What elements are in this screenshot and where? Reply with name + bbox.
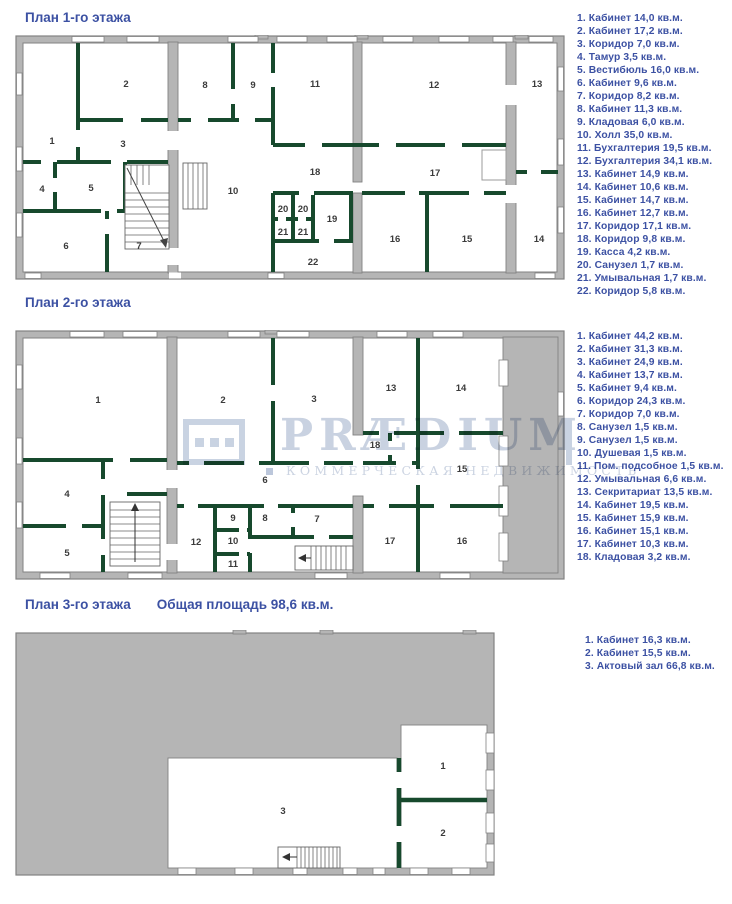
floor2-legend: 1. Кабинет 44,2 кв.м.2. Кабинет 31,3 кв.… [577, 330, 724, 564]
legend-item: 15. Кабинет 14,7 кв.м. [577, 194, 712, 207]
legend-item: 5. Кабинет 9,4 кв.м. [577, 382, 724, 395]
watermark-right-bar [566, 419, 572, 465]
legend-item: 17. Коридор 17,1 кв.м. [577, 220, 712, 233]
room-label: 17 [430, 168, 441, 179]
legend-item: 3. Коридор 7,0 кв.м. [577, 38, 712, 51]
legend-item: 10. Холл 35,0 кв.м. [577, 129, 712, 142]
room-label: 14 [456, 383, 467, 394]
room-label: 18 [310, 167, 321, 178]
room-label: 19 [327, 214, 338, 225]
legend-item: 1. Кабинет 14,0 кв.м. [577, 12, 712, 25]
floor2-staircase-main [110, 502, 160, 566]
room-label: 16 [457, 536, 468, 547]
floor3-plan: 1 2 3 [15, 630, 565, 880]
floor2-staircase-small [295, 546, 353, 570]
legend-item: 3. Актовый зал 66,8 кв.м. [585, 660, 715, 673]
legend-item: 19. Касса 4,2 кв.м. [577, 246, 712, 259]
legend-item: 16. Кабинет 15,1 кв.м. [577, 525, 724, 538]
room-label: 21 [298, 227, 309, 238]
legend-item: 7. Коридор 7,0 кв.м. [577, 408, 724, 421]
legend-item: 6. Кабинет 9,6 кв.м. [577, 77, 712, 90]
floor3-title: План 3-го этажа [25, 597, 131, 612]
room-label: 3 [120, 139, 125, 150]
legend-item: 14. Кабинет 10,6 кв.м. [577, 181, 712, 194]
legend-item: 6. Коридор 24,3 кв.м. [577, 395, 724, 408]
room-label: 15 [462, 234, 473, 245]
room-label: 12 [429, 80, 440, 91]
room-label: 20 [298, 204, 309, 215]
room-label: 21 [278, 227, 289, 238]
legend-item: 4. Тамур 3,5 кв.м. [577, 51, 712, 64]
room-label: 17 [385, 536, 396, 547]
legend-item: 4. Кабинет 13,7 кв.м. [577, 369, 724, 382]
legend-item: 17. Кабинет 10,3 кв.м. [577, 538, 724, 551]
room-label: 8 [202, 80, 207, 91]
room-label: 18 [370, 440, 381, 451]
room-label: 4 [64, 489, 70, 500]
room-label: 12 [191, 537, 202, 548]
legend-item: 21. Умывальная 1,7 кв.м. [577, 272, 712, 285]
room-label: 10 [228, 536, 239, 547]
floor1-title: План 1-го этажа [25, 10, 131, 25]
room-label: 5 [64, 548, 70, 559]
legend-item: 12. Бухгалтерия 34,1 кв.м. [577, 155, 712, 168]
room-label: 2 [220, 395, 225, 406]
legend-item: 14. Кабинет 19,5 кв.м. [577, 499, 724, 512]
legend-item: 9. Санузел 1,5 кв.м. [577, 434, 724, 447]
room-label: 11 [228, 559, 239, 570]
legend-item: 2. Кабинет 31,3 кв.м. [577, 343, 724, 356]
room-label: 9 [250, 80, 255, 91]
room-label: 3 [311, 394, 316, 405]
floor3-staircase [278, 847, 340, 868]
legend-item: 5. Вестибюль 16,0 кв.м. [577, 64, 712, 77]
legend-item: 9. Кладовая 6,0 кв.м. [577, 116, 712, 129]
room-label: 11 [310, 79, 321, 90]
legend-item: 15. Кабинет 15,9 кв.м. [577, 512, 724, 525]
floor1-staircase-hall [183, 163, 207, 209]
legend-item: 18. Кладовая 3,2 кв.м. [577, 551, 724, 564]
room-label: 8 [262, 513, 267, 524]
room-label: 13 [532, 79, 543, 90]
room-label: 6 [262, 475, 267, 486]
legend-item: 13. Секритариат 13,5 кв.м. [577, 486, 724, 499]
floor3-total-area: Общая площадь 98,6 кв.м. [157, 597, 334, 612]
legend-item: 3. Кабинет 24,9 кв.м. [577, 356, 724, 369]
room-label: 13 [386, 383, 397, 394]
legend-item: 10. Душевая 1,5 кв.м. [577, 447, 724, 460]
room-label: 14 [534, 234, 545, 245]
room-label: 7 [136, 241, 141, 252]
legend-item: 18. Коридор 9,8 кв.м. [577, 233, 712, 246]
legend-item: 1. Кабинет 44,2 кв.м. [577, 330, 724, 343]
room-label: 15 [457, 464, 468, 475]
room-label: 5 [88, 183, 94, 194]
room-label: 9 [230, 513, 235, 524]
room-label: 3 [280, 806, 285, 817]
room-label: 20 [278, 204, 289, 215]
floor1-legend: 1. Кабинет 14,0 кв.м.2. Кабинет 17,2 кв.… [577, 12, 712, 298]
legend-item: 8. Санузел 1,5 кв.м. [577, 421, 724, 434]
room-label: 4 [39, 184, 45, 195]
floor2-title: План 2-го этажа [25, 295, 131, 310]
room-label: 1 [440, 761, 446, 772]
legend-item: 13. Кабинет 14,9 кв.м. [577, 168, 712, 181]
room-label: 10 [228, 186, 239, 197]
room-label: 1 [49, 136, 55, 147]
room-label: 6 [63, 241, 68, 252]
legend-item: 12. Умывальная 6,6 кв.м. [577, 473, 724, 486]
floor3-legend: 1. Кабинет 16,3 кв.м.2. Кабинет 15,5 кв.… [585, 634, 715, 673]
legend-item: 1. Кабинет 16,3 кв.м. [585, 634, 715, 647]
legend-item: 2. Кабинет 15,5 кв.м. [585, 647, 715, 660]
room-label: 2 [123, 79, 128, 90]
floor1-staircase-main [125, 165, 169, 249]
floor2-gray-block [503, 337, 558, 573]
floor3-heading-row: План 3-го этажа Общая площадь 98,6 кв.м. [25, 597, 333, 612]
legend-item: 22. Коридор 5,8 кв.м. [577, 285, 712, 298]
legend-item: 16. Кабинет 12,7 кв.м. [577, 207, 712, 220]
floor1-plan: 1 2 3 4 5 6 7 8 9 10 11 12 13 14 15 16 1… [15, 35, 565, 280]
room-label: 22 [308, 257, 319, 268]
floor2-plan: 1 2 3 4 5 6 7 8 9 10 11 12 13 14 15 16 1… [15, 330, 565, 580]
room-label: 1 [95, 395, 101, 406]
room-label: 16 [390, 234, 401, 245]
room-label: 7 [314, 514, 319, 525]
legend-item: 8. Кабинет 11,3 кв.м. [577, 103, 712, 116]
legend-item: 20. Санузел 1,7 кв.м. [577, 259, 712, 272]
legend-item: 11. Пом. подсобное 1,5 кв.м. [577, 460, 724, 473]
legend-item: 2. Кабинет 17,2 кв.м. [577, 25, 712, 38]
legend-item: 11. Бухгалтерия 19,5 кв.м. [577, 142, 712, 155]
legend-item: 7. Коридор 8,2 кв.м. [577, 90, 712, 103]
room-label: 2 [440, 828, 445, 839]
